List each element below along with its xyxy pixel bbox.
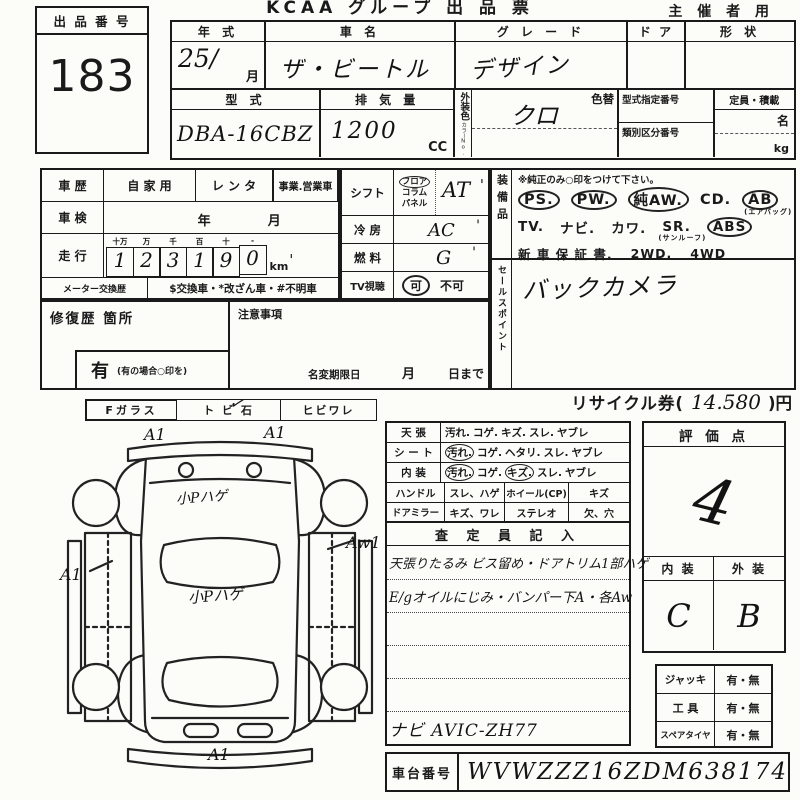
lot-number: 183 [37,51,147,102]
chassis-number-value: WVWZZZ16ZDM638174 [467,759,788,785]
tv-label: TV視聴 [342,272,394,298]
model-value: DBA-16CBZ [177,122,313,146]
rename-day-until: 日まで [448,365,484,382]
history-table: 車 歴 自 家 用 レ ン タ 事業.営業車 車 検 年 月 走 行 十万 1 [40,168,340,300]
odometer: 十万 1 万 2 千 3 百 1 [104,234,338,277]
diagram-note-roof: 小Pハゲ [187,583,243,608]
shift-value: AT [442,178,470,202]
fuel-value-cell: G ' [394,244,488,271]
inspector-note-1: 天張りたるみ ビス留め・ドアトリム1部ハゲ [389,553,648,572]
capacity-cell: 名 kg [715,110,794,157]
repair-history-label: 修復歴 箇所 [42,302,228,332]
rating-header: 評 価 点 [644,423,784,447]
auction-sheet: KCAA グループ 出 品 票 主 催 者 用 出 品 番 号 183 年 式 … [0,0,800,800]
history-label: 車 歴 [42,170,104,201]
ac-tick-mark: ' [476,218,480,234]
interior-grade-cell: C [644,581,714,650]
chassis-number-label: 車台番号 [387,754,459,790]
capacity-header: 定員・積載 [715,90,794,110]
fuel-tick-mark: ' [472,245,476,261]
condition-row-seat: シ ー ト 汚れ.コゲ.ヘタリ.スレ.ヤブレ [387,443,629,463]
shift-tick-mark: ' [480,176,484,194]
mileage-label: 走 行 [42,234,104,277]
interior-scratch-circled: キズ. [505,464,534,481]
tv-ng: 不可 [440,277,464,294]
sales-point-label: セールスポイント [495,265,508,388]
shift-option-panel: パネル [402,199,428,210]
model-cell: DBA-16CBZ [172,110,319,157]
interior-grade: C [666,597,690,635]
recycle-fee-amount: 14.580 [684,390,768,414]
exterior-grade-header: 外 装 [714,557,784,580]
km-tick-mark: ' [289,251,293,269]
repair-yes: 有 [91,357,109,383]
condition-row-interior: 内 装 汚れ.コゲ.キズ.スレ.ヤブレ [387,463,629,483]
history-rental: レ ン タ [196,170,274,201]
inspector-entry-header: 査 定 員 記 入 [387,523,629,546]
lot-number-box: 出 品 番 号 183 [35,6,149,154]
front-glass-label: Fガラス [85,399,177,421]
rating-score: 4 [686,461,742,541]
tools-yesno: 有・無 [715,694,771,721]
inspection-cell: 年 月 [104,202,338,233]
exterior-grade: B [737,597,761,635]
ac-label: 冷 房 [342,216,394,243]
stereo-label: ステレオ [505,503,569,521]
displacement-unit: CC [428,140,447,155]
displacement-cell: 1200 CC [321,110,453,157]
meter-history-note: $交換車・*改ざん車・#不明車 [148,278,338,298]
color-change-label: 色替 [591,91,614,107]
grade-header: グ レ ー ド [456,22,626,42]
caution-label: 注意事項 [230,302,488,326]
month-suffix: 月 [246,66,259,85]
interior-grade-header: 内 装 [644,557,714,580]
shape-header: 形 状 [686,22,794,42]
jack-yesno: 有・無 [715,666,771,693]
grade-value: デザイン [469,45,571,86]
odometer-digit: - 0 [239,236,267,277]
rename-month-unit: 月 [402,363,415,382]
shift-label: シフト [342,170,394,215]
km-unit: km [270,260,289,273]
recycle-fee-suffix: )円 [768,390,792,414]
glass-crack-label: ヒビワレ [281,399,377,421]
diagram-mark-rear: A1 [208,745,230,764]
door-cell [628,42,684,88]
condition-row-headliner: 天 張 汚れ.コゲ.キズ.スレ.ヤブレ [387,423,629,443]
exterior-grade-cell: B [714,581,784,650]
repair-yes-box: 有 (有の場合○印を) [75,350,230,390]
shape-cell [686,42,794,88]
tv-value-cell: 可 不可 [394,272,488,298]
diagram-mark-side-left: A1 [60,565,82,584]
inspector-note-2: E/gオイルにじみ・バンパー下A・各Aw [389,586,632,606]
equipment-item-2wd: 2WD. [631,246,673,261]
handle-label: ハンドル [387,483,445,502]
capacity-kg-unit: kg [774,142,789,155]
front-glass-row: Fガラス ト ビ 石 ✓ ヒビワレ [85,399,377,421]
inspection-label: 車 検 [42,202,104,233]
sales-point-box: セールスポイント バックカメラ [490,260,796,390]
airbag-note: (エアバッグ) [744,207,792,217]
odometer-digit: 百 1 [186,236,214,277]
equipment-item-tv: TV. [518,219,544,235]
navi-note: ナビ AVIC-ZH77 [389,716,538,741]
stereo-items: 欠、穴 [569,503,629,521]
meter-history-label: メーター交換歴 [42,278,148,298]
shift-value-cell: AT ' [436,170,488,215]
color-no-label: カラーNo. [459,122,467,157]
equipment-item-cd: CD. [700,192,731,208]
grade-cell: デザイン [456,42,626,88]
equipment-item-sr: SR. (サンルーフ) [662,219,691,235]
wheel-label: ホイール(CP) [505,483,569,502]
odometer-digit: 十 9 [212,236,240,277]
car-name-header: 車 名 [266,22,454,42]
displacement-header: 排 気 量 [321,90,453,110]
shift-option-column: コラム [402,188,427,199]
year-cell: 25/ 月 [172,42,264,88]
seat-dirt-circled: 汚れ. [445,444,474,461]
condition-table: 天 張 汚れ.コゲ.キズ.スレ.ヤブレ シ ー ト 汚れ.コゲ.ヘタリ.スレ.ヤ… [385,421,631,746]
chassis-number-row: 車台番号 WVWZZZ16ZDM638174 [385,752,790,792]
inspection-year-unit: 年 [198,210,211,229]
equipment-item-leather: カワ. [611,217,646,237]
fuel-value: G [436,247,451,269]
organizer-label: 主 催 者 用 [668,1,774,21]
tools-label: 工 具 [657,694,715,721]
shift-option-floor: フロア [399,176,431,189]
equipment-item-ab: AB (エアバッグ) [742,190,778,210]
tv-ok: 可 [402,275,430,296]
history-private: 自 家 用 [104,170,196,201]
handle-items: スレ、ハゲ [445,483,505,502]
exterior-color-value: クロ [510,96,558,131]
diagram-mark-hood-right: A1 [264,423,286,442]
note-ruled-line [387,612,629,613]
car-name-cell: ザ・ビートル [266,42,454,88]
glass-stone-chip: ト ビ 石 ✓ [177,399,281,421]
odometer-digit: 千 3 [159,236,187,277]
car-diagram: A1 A1 A1 Aw1 A1 小Pハゲ 小Pハゲ [60,425,380,785]
equipment-item-4wd: 4WD [690,246,726,261]
lot-number-label: 出 品 番 号 [37,8,147,35]
diagram-note-hood: 小Pハゲ [175,485,228,509]
door-header: ド ア [628,22,684,42]
color-divider [472,128,617,129]
accessories-table: ジャッキ 有・無 工 具 有・無 スペアタイヤ 有・無 [655,664,773,748]
ac-value: AC [428,220,455,241]
repair-history-box: 修復歴 箇所 有 (有の場合○印を) [40,300,230,390]
caution-box: 注意事項 名変期限日 月 日まで [230,300,490,390]
note-ruled-line [387,579,629,580]
sales-point-value: バックカメラ [521,265,678,305]
equipment-item-aw: 純AW. [628,187,689,212]
diagram-mark-side-right: Aw1 [346,533,381,552]
door-mirror-items: キズ、ワレ [445,503,505,521]
recycle-fee-prefix: リサイクル券( [571,390,684,414]
equipment-note: ※純正のみ○印をつけて下さい。 [518,172,788,186]
interior-dirt-circled: 汚れ. [445,464,474,481]
type-designation-cell: 型式指定番号 [619,90,712,123]
shift-options: フロア コラム パネル [394,170,436,215]
model-header: 型 式 [172,90,319,110]
displacement-value: 1200 [331,118,398,144]
sunroof-note: (サンルーフ) [658,233,706,243]
equipment-item-abs: ABS [707,217,752,237]
equipment-item-navi: ナビ. [560,217,595,237]
note-ruled-line [387,678,629,679]
capacity-persons-unit: 名 [777,112,789,129]
diagram-mark-hood-left: A1 [144,425,166,444]
inspection-month-unit: 月 [268,210,281,229]
ac-value-cell: AC ' [394,216,488,243]
capacity-divider [715,133,794,134]
door-mirror-label: ドアミラー [387,503,445,521]
equipment-box: 装備品 ※純正のみ○印をつけて下さい。 PS. PW. 純AW. CD. AB … [490,168,796,260]
equipment-label: 装備品 [494,174,510,258]
note-ruled-line [387,711,629,712]
spare-tire-yesno: 有・無 [715,722,771,747]
year-header: 年 式 [172,22,264,42]
equipment-item-pw: PW. [571,190,617,210]
rating-box: 評 価 点 4 内 装 外 装 C B [642,421,786,653]
exterior-color-label: 外装色 [456,92,470,121]
jack-label: ジャッキ [657,666,715,693]
inspector-notes-area: 天張りたるみ ビス留め・ドアトリム1部ハゲ E/gオイルにじみ・バンパー下A・各… [387,546,629,744]
car-name-value: ザ・ビートル [280,50,430,84]
repair-yes-note: (有の場合○印を) [117,364,187,377]
spare-tire-label: スペアタイヤ [657,722,715,747]
odometer-digit: 十万 1 [106,236,134,277]
recycle-fee: リサイクル券( 14.580 )円 [440,390,792,414]
fuel-label: 燃 料 [342,244,394,271]
shift-table: シフト フロア コラム パネル AT ' 冷 房 AC ' 燃 料 G ' [340,168,490,300]
wheel-items: キズ [569,483,629,502]
year-value: 25/ [178,44,218,73]
equipment-item-ps: PS. [518,190,560,210]
rename-deadline-label: 名変期限日 [308,367,361,382]
vehicle-info-table: 年 式 25/ 月 車 名 ザ・ビートル グ レ ー ド デザイン ド ア [170,20,796,160]
history-business: 事業.営業車 [274,170,338,201]
odometer-digit: 万 2 [133,236,161,277]
note-ruled-line [387,645,629,646]
class-number-cell: 類別区分番号 [619,123,712,157]
